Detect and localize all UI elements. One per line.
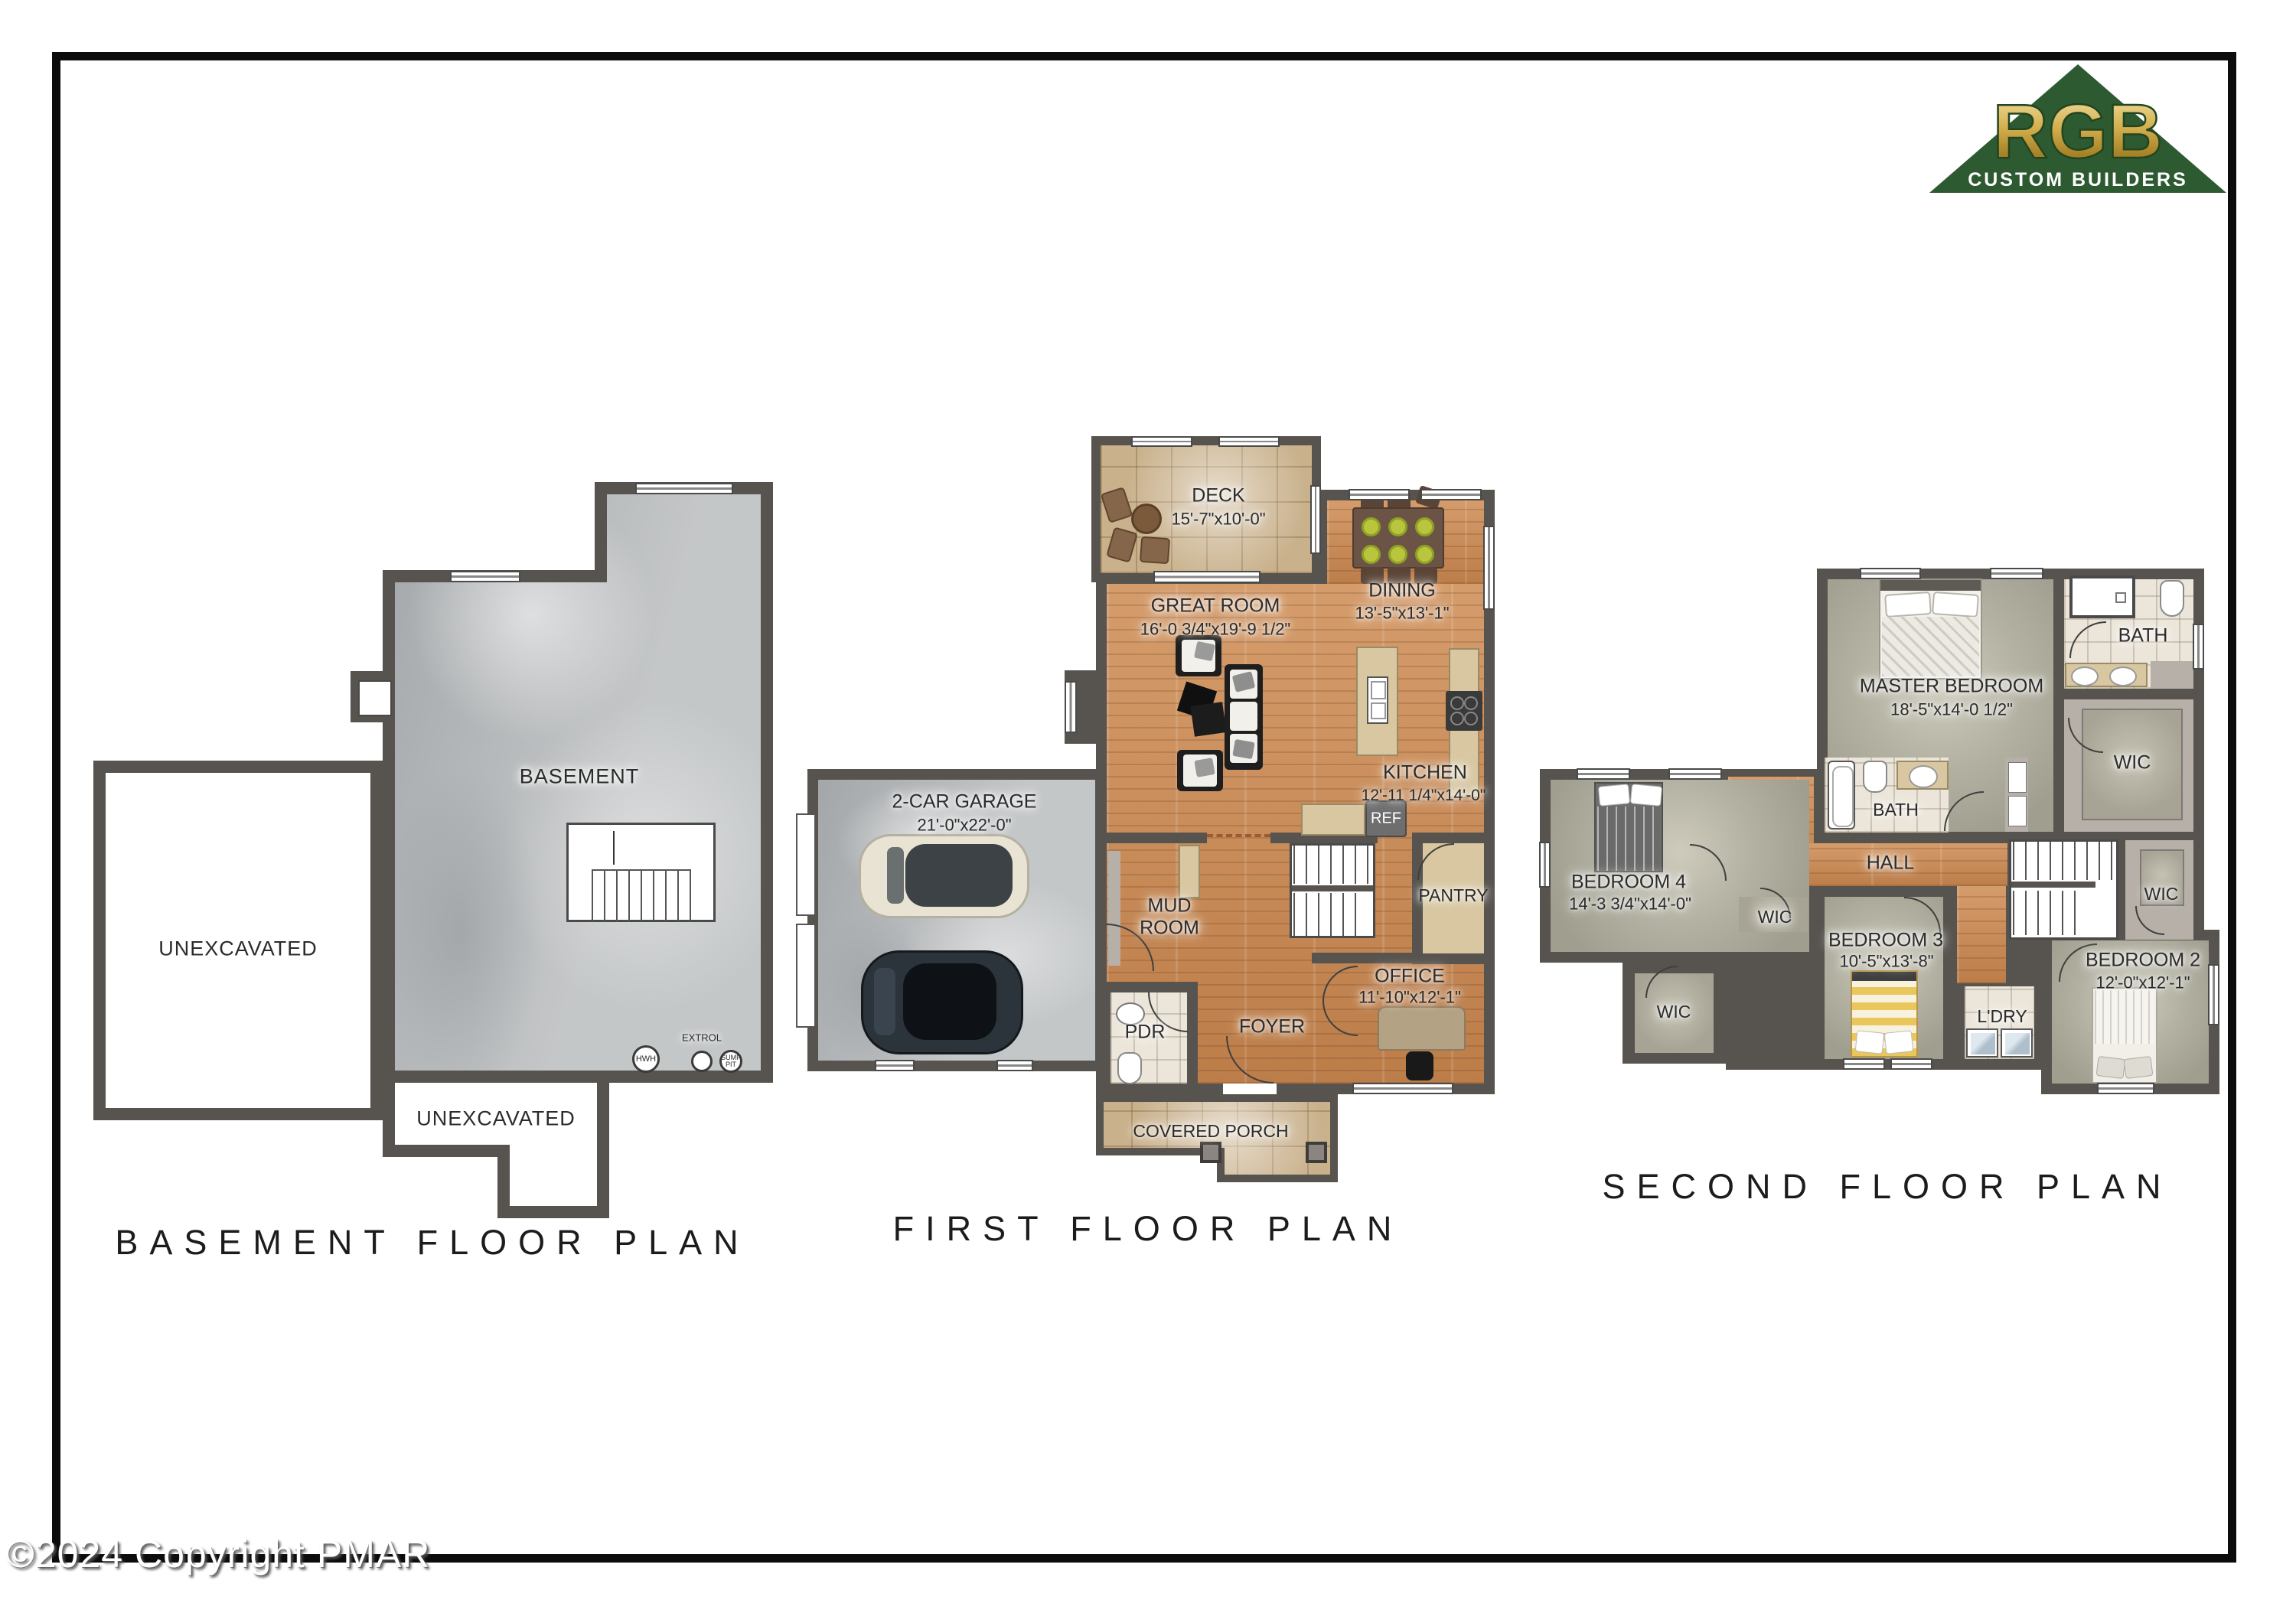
garage-door-2: [796, 924, 816, 1028]
stairs1-lower-treads: [1293, 893, 1361, 936]
bed4-dims: 14'-3 3/4"x14'-0": [1569, 894, 1691, 913]
kitchen-stove: [1446, 691, 1482, 731]
bed4-window-1: [1577, 768, 1630, 780]
mud-bench: [1179, 845, 1200, 898]
hwh-circle: HWH: [632, 1045, 660, 1073]
car-suv-windshield: [887, 847, 904, 904]
dining-window-right: [1483, 526, 1495, 610]
toilet-bath-hall: [1863, 761, 1887, 793]
pantry-label: PANTRY: [1418, 885, 1488, 905]
dining-window-top-2: [1420, 489, 1482, 500]
bed4-window-2: [1668, 768, 1722, 780]
greatroom-dims: 16'-0 3/4"x19'-9 1/2": [1140, 619, 1290, 638]
dining-window-top-1: [1349, 489, 1410, 500]
extrol-label: EXTROL: [682, 1033, 722, 1045]
sump-pit-label: SUMP PIT: [721, 1054, 741, 1068]
copyright-watermark: ©2024 Copyright PMAR: [6, 1532, 430, 1576]
bed3-dims: 10'-5"x13'-8": [1839, 951, 1933, 970]
washer: [1966, 1028, 1998, 1058]
kitchen-label: KITCHEN: [1383, 762, 1467, 784]
master-closet: [2005, 758, 2028, 832]
wic3-label: WIC: [1657, 1002, 1691, 1022]
pdr-label: PDR: [1125, 1022, 1166, 1044]
car-sedan: [861, 950, 1023, 1054]
dining-plate-4: [1362, 545, 1381, 564]
foyer-label: FOYER: [1239, 1016, 1305, 1038]
dining-plate-2: [1388, 517, 1407, 536]
garage-label: 2-CAR GARAGE: [892, 791, 1037, 813]
bath-top-sink-1: [2071, 666, 2099, 686]
first-plan-title: FIRST FLOOR PLAN: [893, 1209, 1404, 1249]
dryer: [2001, 1028, 2033, 1058]
deck-window-top-2: [1218, 436, 1280, 447]
second-floor-stairs: [2009, 839, 2118, 940]
bed3-window-1: [1843, 1058, 1885, 1070]
extrol-circle: [691, 1051, 713, 1072]
basement-window-top: [635, 483, 733, 494]
office-chair: [1406, 1051, 1433, 1080]
hall-floor-lower: [1957, 886, 2006, 983]
car-sedan-glass: [903, 963, 996, 1040]
stairs2-upper-treads: [2013, 842, 2115, 880]
basement-bump-window: [358, 680, 392, 716]
bed4-label: BEDROOM 4: [1571, 872, 1686, 894]
master-window-2: [1990, 568, 2043, 579]
deck-chair-3: [1140, 536, 1170, 565]
office-desk: [1378, 1006, 1466, 1051]
stairs1-landing-wall: [1292, 885, 1373, 891]
island-sink: [1367, 676, 1388, 724]
kitchen-dims: 12'-11 1/4"x14'-0": [1362, 787, 1486, 805]
master-bed: [1879, 578, 1982, 680]
car-suv-glass: [905, 844, 1013, 907]
office-window-bottom: [1352, 1083, 1453, 1094]
ldry-label: L'DRY: [1977, 1006, 2027, 1026]
coffee-table-2: [1190, 702, 1226, 736]
porch-post-2: [1306, 1142, 1327, 1163]
wic-bed4-label: WIC: [1758, 907, 1792, 927]
dining-plate-3: [1415, 517, 1434, 536]
toilet-bath-top: [2160, 580, 2184, 617]
stairs2-lower-treads: [2013, 891, 2079, 935]
sofa: [1225, 664, 1263, 770]
logo-tagline: CUSTOM BUILDERS: [1968, 169, 2188, 191]
ref-label: REF: [1371, 810, 1401, 828]
car-suv: [859, 834, 1029, 918]
deck-door-window: [1153, 571, 1261, 583]
bath-wic-divider: [2064, 689, 2193, 699]
bed4-window-left: [1539, 842, 1551, 888]
garage-window-2: [996, 1060, 1033, 1071]
unexcavated-left-label: UNEXCAVATED: [158, 937, 318, 960]
porch-label: COVERED PORCH: [1133, 1121, 1288, 1141]
bed2-dims: 12'-0"x12'-1": [2095, 973, 2190, 992]
bed2-bed: [2092, 987, 2157, 1084]
basement-room-label: BASEMENT: [520, 764, 640, 788]
bed2-label: BEDROOM 2: [2086, 950, 2200, 972]
floorplan-sheet: RGB CUSTOM BUILDERS HWH EXTROL SUMP PIT …: [0, 0, 2296, 1623]
greatroom-label: GREAT ROOM: [1151, 595, 1280, 618]
logo-initials: RGB: [1993, 89, 2163, 174]
deck-dims: 15'-7"x10'-0": [1171, 509, 1265, 528]
garage-window-1: [875, 1060, 915, 1071]
basement-plan-title: BASEMENT FLOOR PLAN: [115, 1223, 749, 1263]
garage-door-1: [796, 813, 816, 916]
kitchen-opening-dashed: [1207, 834, 1270, 837]
bath-top-linen: [2151, 661, 2193, 689]
bath-top-label: BATH: [2118, 625, 2168, 647]
master-dims: 18'-5"x14'-0 1/2": [1890, 699, 2013, 719]
stairs1-upper-treads: [1293, 846, 1371, 884]
mudroom-label: MUD ROOM: [1127, 895, 1212, 939]
armchair-2: [1177, 750, 1223, 791]
front-door-opening: [1223, 1084, 1277, 1094]
bed3-window-2: [1890, 1058, 1932, 1070]
basement-stair-treads: [592, 869, 691, 921]
dining-plate-6: [1415, 545, 1434, 564]
dining-label: DINING: [1368, 580, 1436, 602]
basement-stairs: [566, 823, 716, 922]
bed3-bed: [1851, 970, 1918, 1058]
basement-window-left-top: [450, 571, 520, 582]
bath-top-sink-2: [2109, 666, 2137, 686]
porch-post-1: [1200, 1142, 1221, 1163]
sump-pit-circle: SUMP PIT: [719, 1050, 742, 1073]
deck-window-right: [1310, 485, 1321, 554]
master-window-1: [1860, 568, 1921, 579]
deck-table: [1131, 504, 1162, 534]
rgb-custom-builders-logo: RGB CUSTOM BUILDERS: [1927, 61, 2229, 200]
wic-master-label: WIC: [2114, 752, 2151, 774]
first-floor-stairs: [1290, 843, 1375, 938]
bed2-window-bottom: [2097, 1083, 2154, 1094]
bay-window: [1065, 681, 1077, 733]
bed3-label: BEDROOM 3: [1828, 930, 1943, 952]
bath-top-window: [2193, 624, 2204, 670]
office-label: OFFICE: [1375, 966, 1445, 988]
armchair-1: [1176, 635, 1221, 676]
hwh-label: HWH: [636, 1054, 656, 1064]
master-label: MASTER BEDROOM: [1860, 676, 2043, 698]
second-plan-title: SECOND FLOOR PLAN: [1602, 1167, 2172, 1207]
pdr-toilet: [1117, 1052, 1142, 1084]
garage-dims: 21'-0"x22'-0": [917, 815, 1011, 834]
bed4-bed: [1594, 782, 1663, 872]
hall-label: HALL: [1867, 852, 1915, 875]
bed2-window-right: [2208, 964, 2219, 1025]
basement-stair-arrow: [613, 831, 615, 865]
deck-label: DECK: [1192, 485, 1244, 507]
office-dims: 11'-10"x12'-1": [1358, 987, 1461, 1006]
wic-hall-label: WIC: [2144, 884, 2179, 904]
dining-plate-5: [1388, 545, 1407, 564]
bath-hall-label: BATH: [1873, 800, 1919, 820]
bath-hall-sink: [1909, 765, 1938, 788]
deck-window-top-1: [1131, 436, 1192, 447]
greatroom-mud-wall-left: [1100, 833, 1207, 843]
dining-plate-1: [1362, 517, 1381, 536]
dining-dims: 13'-5"x13'-1": [1355, 603, 1449, 622]
kitchen-counter-bottom: [1301, 803, 1365, 836]
stairs2-landing: [2011, 882, 2095, 888]
unexcavated-bottom-label: UNEXCAVATED: [416, 1106, 576, 1130]
bathtub: [1828, 761, 1855, 829]
shower: [2069, 575, 2135, 618]
car-sedan-hood: [874, 968, 895, 1035]
